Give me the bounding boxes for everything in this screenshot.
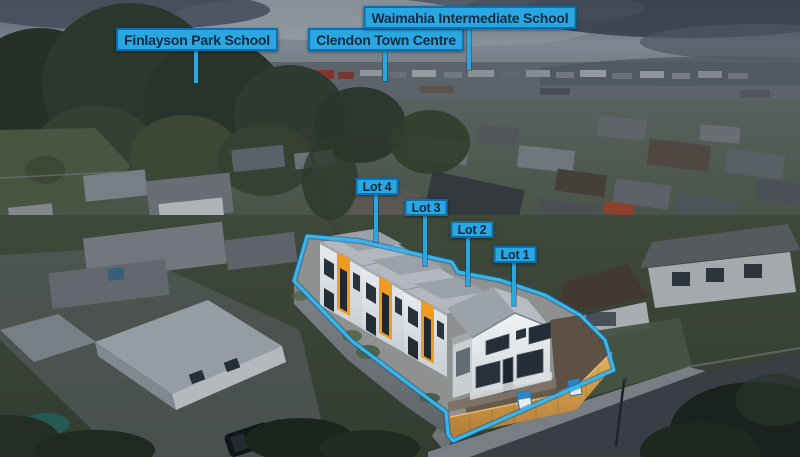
- landmark-label-finlayson: Finlayson Park School: [116, 28, 278, 51]
- lot-label-3: Lot 3: [405, 199, 448, 216]
- lot-label-1: Lot 1: [494, 246, 537, 263]
- leader-line-lot-1: [512, 262, 516, 306]
- leader-line-waimahia: [467, 28, 471, 70]
- leader-line-lot-3: [423, 215, 427, 266]
- leader-line-finlayson: [194, 50, 198, 83]
- leader-line-lot-2: [466, 237, 470, 286]
- lot-label-4: Lot 4: [356, 178, 399, 195]
- leader-line-clendon: [383, 50, 387, 81]
- landmark-label-clendon: Clendon Town Centre: [308, 28, 464, 51]
- leader-line-lot-4: [374, 194, 378, 242]
- property-aerial-view: Finlayson Park School Clendon Town Centr…: [0, 0, 800, 457]
- landmark-label-waimahia: Waimahia Intermediate School: [364, 6, 577, 29]
- aerial-photo: [0, 0, 800, 457]
- lot-label-2: Lot 2: [451, 221, 494, 238]
